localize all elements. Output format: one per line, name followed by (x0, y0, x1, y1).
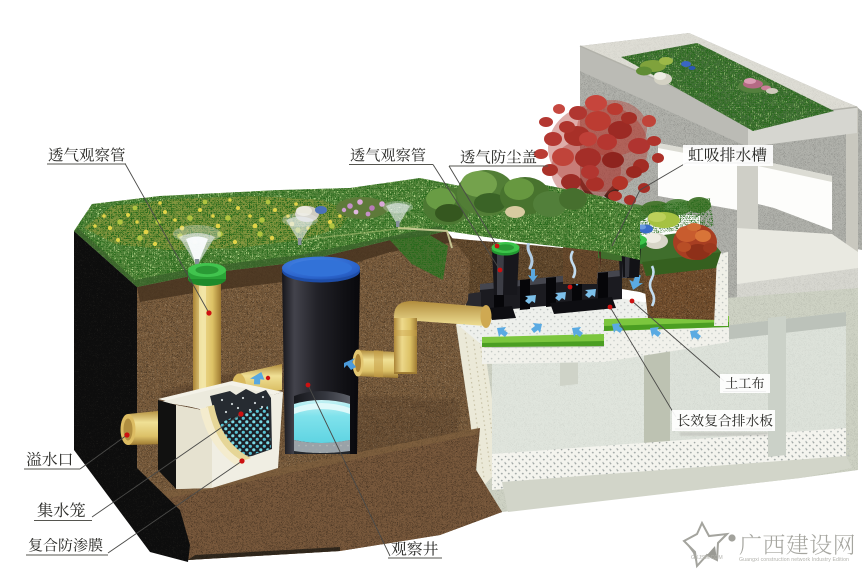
svg-text:Guangxi construction network I: Guangxi construction network Industry Ed… (739, 557, 849, 563)
svg-text:GXJSW.COM: GXJSW.COM (691, 555, 723, 561)
